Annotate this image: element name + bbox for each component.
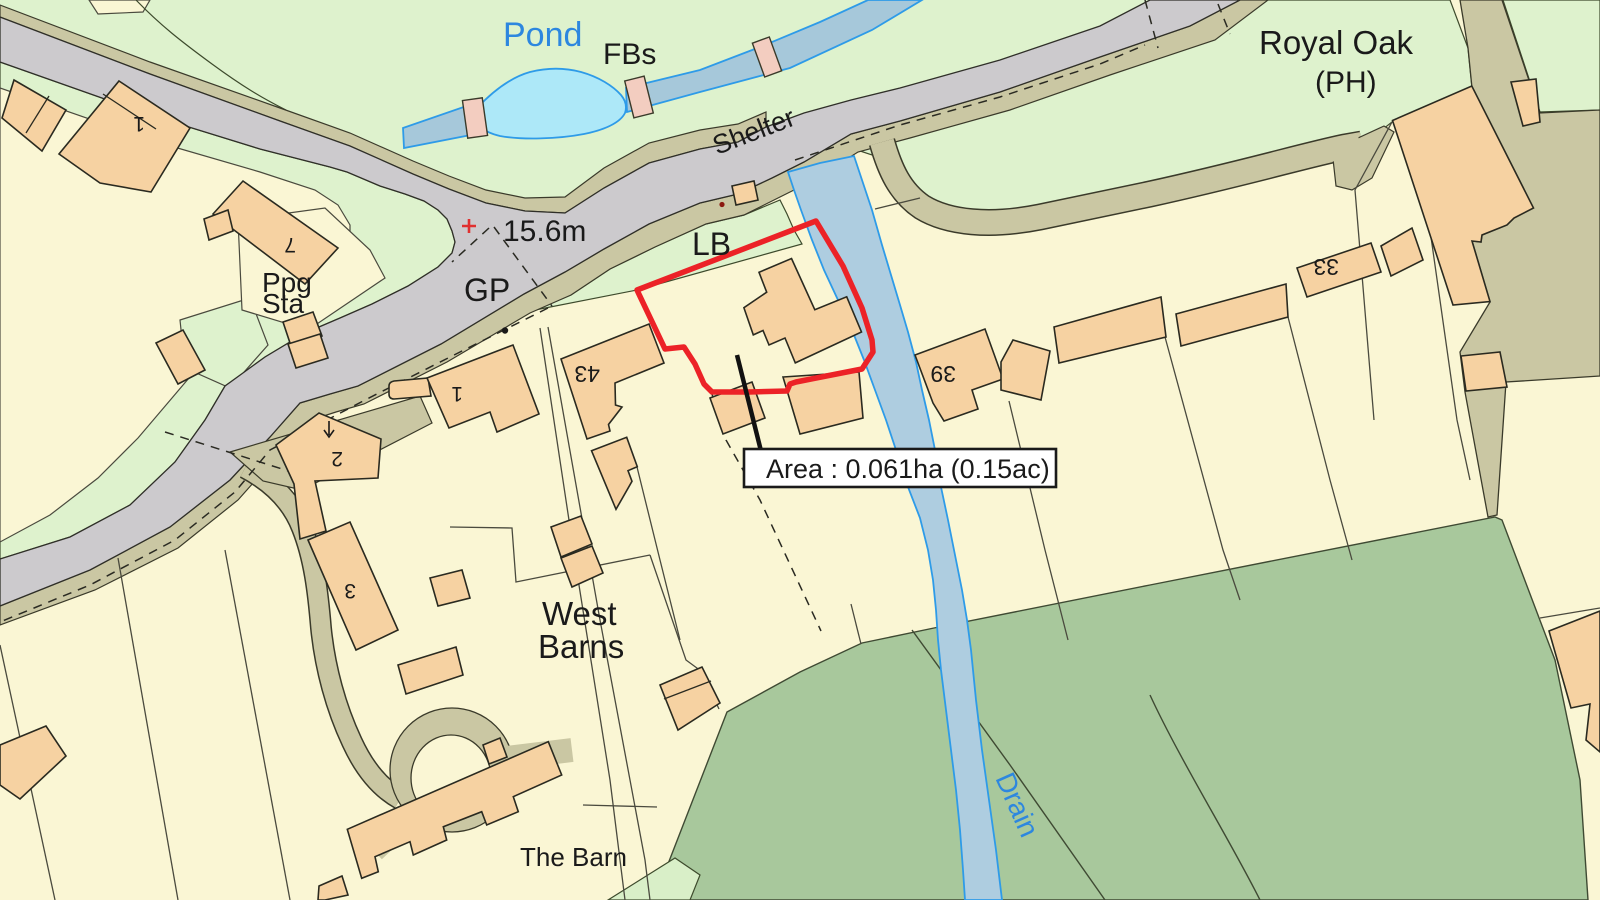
svg-text:Area : 0.061ha (0.15ac): Area : 0.061ha (0.15ac) — [766, 454, 1050, 484]
svg-text:West: West — [542, 595, 617, 632]
svg-text:15.6m: 15.6m — [503, 215, 586, 248]
svg-text:33: 33 — [1313, 254, 1339, 280]
svg-text:43: 43 — [574, 361, 600, 387]
svg-text:Sta: Sta — [262, 288, 304, 319]
svg-text:(PH): (PH) — [1315, 66, 1377, 99]
svg-text:Royal Oak: Royal Oak — [1259, 24, 1414, 61]
svg-text:7: 7 — [284, 233, 296, 256]
svg-text:3: 3 — [344, 579, 356, 602]
svg-text:39: 39 — [930, 361, 956, 387]
svg-text:1: 1 — [133, 112, 145, 135]
svg-text:GP: GP — [464, 272, 510, 308]
svg-text:2: 2 — [331, 447, 343, 470]
svg-text:Pond: Pond — [503, 16, 582, 54]
svg-text:1: 1 — [451, 382, 463, 405]
svg-text:LB: LB — [692, 226, 731, 262]
svg-text:FBs: FBs — [603, 38, 656, 71]
svg-text:The Barn: The Barn — [520, 842, 627, 872]
svg-text:Barns: Barns — [538, 628, 624, 665]
